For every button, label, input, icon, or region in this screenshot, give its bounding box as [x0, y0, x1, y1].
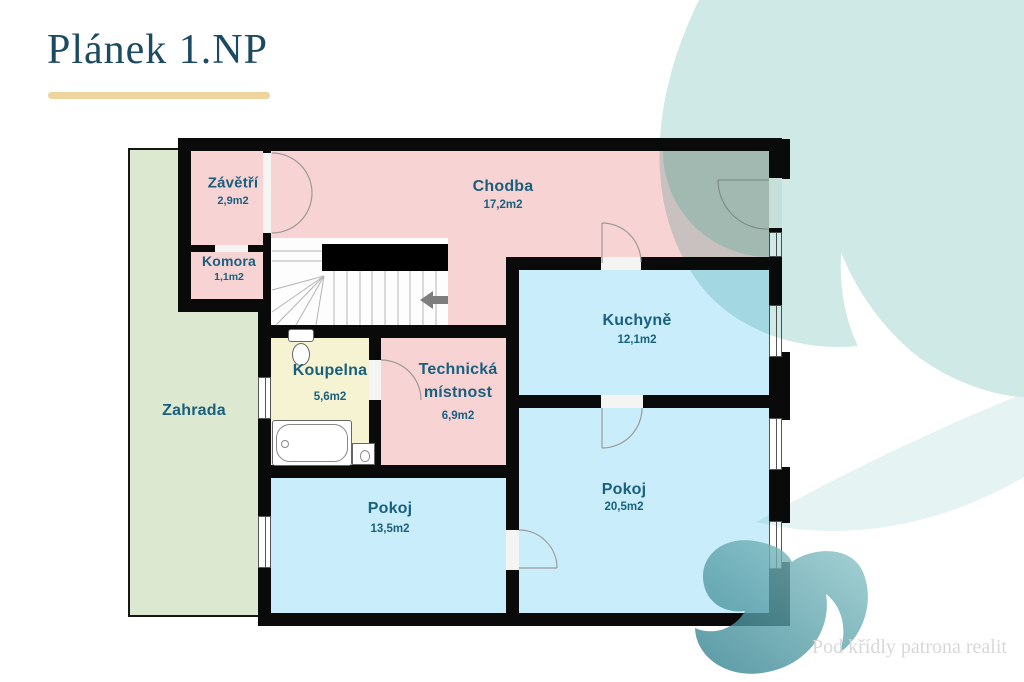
door-zavetri-chodba	[263, 153, 271, 233]
title-underline	[48, 92, 270, 99]
label-chodba: Chodba	[473, 178, 534, 196]
label-komora: Komora	[202, 253, 256, 269]
area-komora: 1,1m2	[214, 271, 244, 283]
door-technicka	[369, 360, 381, 400]
area-koupelna: 5,6m2	[314, 391, 347, 403]
label-pokoj-left: Pokoj	[368, 500, 413, 518]
area-zavetri: 2,9m2	[217, 195, 248, 207]
watermark-text: Pod křídly patrona realit	[812, 636, 1007, 659]
label-pokoj-right: Pokoj	[602, 481, 647, 499]
wall-pier	[782, 352, 790, 420]
label-zahrada: Zahrada	[162, 402, 226, 420]
staircase-wall	[322, 244, 448, 271]
room-kuchyne-floor	[519, 270, 769, 395]
page-title: Plánek 1.NP	[47, 26, 268, 74]
toilet-tank-icon	[288, 329, 314, 342]
bathtub-icon	[272, 420, 352, 466]
door-chodba-kuchyne	[601, 257, 641, 270]
floorplan-page: Plánek 1.NP	[0, 0, 1024, 682]
wall-pier	[782, 139, 790, 179]
area-pokoj-left: 13,5m2	[370, 523, 409, 535]
label-technicka-2: místnost	[424, 384, 492, 402]
window-kuchyne	[769, 305, 782, 357]
label-koupelna: Koupelna	[293, 362, 368, 380]
sink-icon	[352, 443, 375, 465]
window-pokoj-right-2	[769, 521, 782, 569]
wall-pier	[782, 467, 790, 523]
label-zavetri: Závětří	[208, 175, 259, 192]
window-porch	[769, 232, 782, 257]
door-kuchyne-pokoj	[601, 395, 643, 408]
area-technicka: 6,9m2	[442, 410, 475, 422]
window-koupelna	[258, 377, 271, 419]
window-pokoj-right-1	[769, 418, 782, 470]
area-pokoj-right: 20,5m2	[604, 501, 643, 513]
area-chodba: 17,2m2	[483, 199, 522, 211]
wall-pier	[782, 562, 790, 626]
area-kuchyne: 12,1m2	[617, 334, 656, 346]
room-pokoj-right-floor	[519, 408, 769, 613]
door-entry	[769, 178, 782, 228]
door-komora	[215, 245, 248, 252]
label-kuchyne: Kuchyně	[603, 312, 672, 330]
room-pokoj-left-floor	[271, 478, 506, 613]
label-technicka-1: Technická	[419, 361, 498, 379]
door-pokoj-pokoj	[506, 530, 519, 570]
window-pokoj-left	[258, 516, 271, 568]
